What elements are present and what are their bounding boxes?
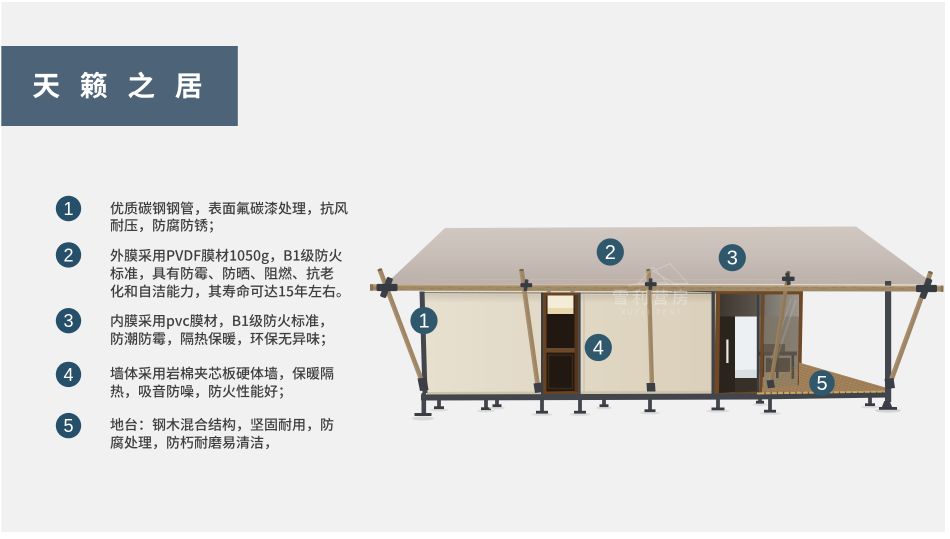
svg-text:4: 4 — [63, 365, 73, 385]
svg-text:5: 5 — [816, 373, 827, 395]
svg-text:2: 2 — [63, 245, 73, 265]
svg-text:5: 5 — [63, 416, 73, 436]
svg-text:1: 1 — [418, 311, 429, 333]
svg-text:1: 1 — [63, 199, 73, 219]
svg-text:XUELI TENT: XUELI TENT — [621, 310, 683, 317]
svg-text:2: 2 — [605, 242, 616, 264]
svg-text:3: 3 — [63, 311, 73, 331]
svg-text:3: 3 — [727, 248, 738, 270]
svg-text:4: 4 — [593, 338, 604, 360]
